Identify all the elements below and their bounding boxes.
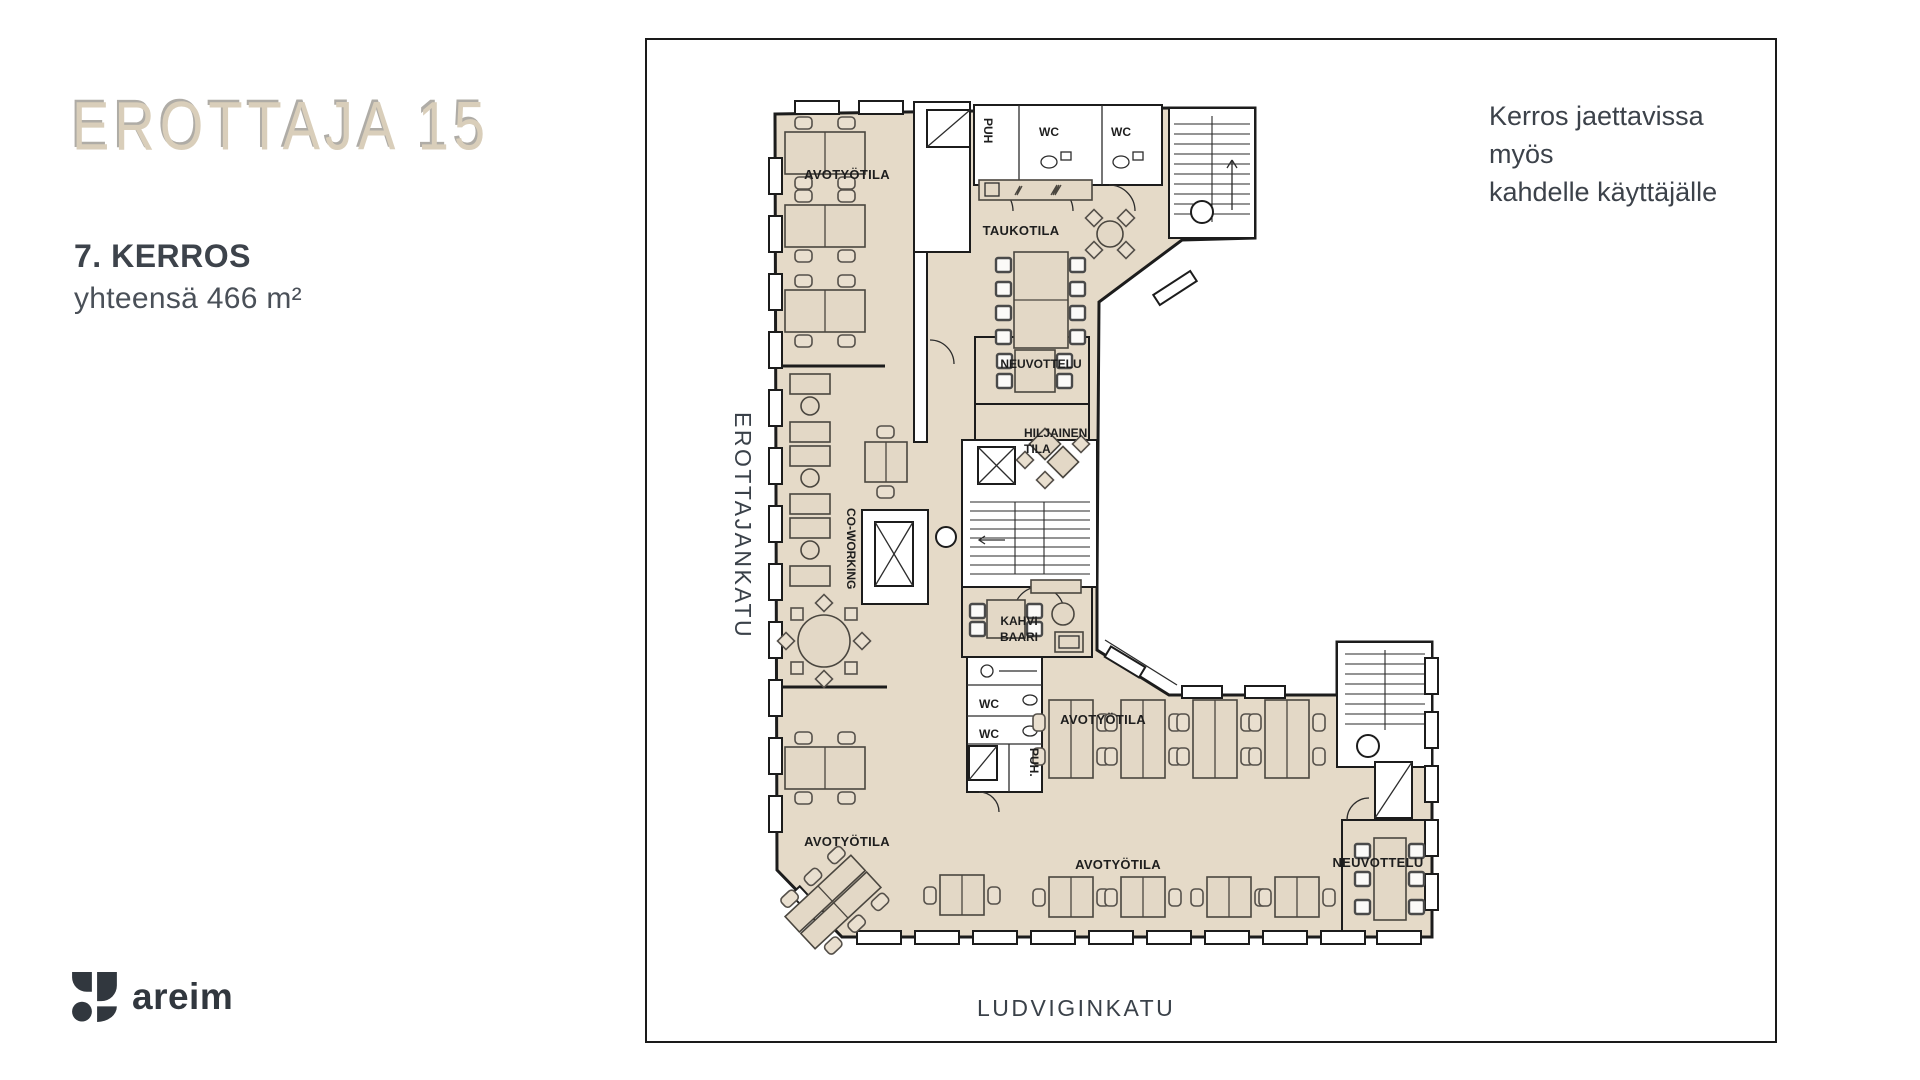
room-label-wc-mid-2: WC bbox=[979, 727, 999, 741]
room-label-coworking: CO-WORKING bbox=[844, 508, 858, 589]
room-label-puh-top: PUH bbox=[981, 118, 995, 143]
stairwell-top-right bbox=[1169, 108, 1255, 238]
room-label-hiljainen-1: HILJAINEN bbox=[1024, 426, 1087, 440]
areim-logo-icon bbox=[72, 972, 118, 1022]
plan-frame: Kerros jaettavissa myös kahdelle käyttäj… bbox=[645, 38, 1777, 1043]
street-label-erottajankatu: EROTTAJANKATU bbox=[730, 412, 756, 639]
areim-logo-text: areim bbox=[132, 976, 233, 1018]
brand-title: EROTTAJA 15 bbox=[72, 86, 490, 165]
street-label-ludviginkatu: LUDVIGINKATU bbox=[977, 995, 1175, 1021]
floor-title: 7. KERROS bbox=[74, 238, 251, 275]
room-label-neuvottelu-mid: NEUVOTTELU bbox=[1000, 357, 1081, 371]
room-label-avotyotila-mid: AVOTYÖTILA bbox=[1060, 712, 1146, 727]
room-label-avotyotila-top: AVOTYÖTILA bbox=[804, 167, 890, 182]
floor-area: yhteensä 466 m² bbox=[74, 282, 302, 316]
top-wc-block bbox=[974, 105, 1162, 185]
room-label-kahvi-2: BAARI bbox=[1000, 630, 1038, 644]
room-label-neuvottelu-bottom: NEUVOTTELU bbox=[1332, 855, 1423, 870]
room-label-wc-top-2: WC bbox=[1111, 125, 1131, 139]
room-label-wc-top-1: WC bbox=[1039, 125, 1059, 139]
floor-plan-svg: AVOTYÖTILA TAUKOTILA NEUVOTTELU HILJAINE… bbox=[647, 40, 1775, 1041]
room-label-taukotila: TAUKOTILA bbox=[983, 223, 1060, 238]
areim-logo: areim bbox=[72, 972, 233, 1022]
room-label-hiljainen-2: TILA bbox=[1024, 442, 1051, 456]
wall-strip bbox=[914, 252, 927, 442]
room-label-kahvi-1: KAHVI bbox=[1000, 614, 1037, 628]
page: { "brand": { "title": "EROTTAJA 15" }, "… bbox=[0, 0, 1920, 1080]
neuvottelu-bottom-furniture bbox=[1355, 838, 1424, 920]
room-label-avotyotila-bottom-left: AVOTYÖTILA bbox=[804, 834, 890, 849]
room-label-puh-mid: PUH. bbox=[1027, 748, 1041, 777]
room-label-wc-mid-1: WC bbox=[979, 697, 999, 711]
room-label-avotyotila-bottom-center: AVOTYÖTILA bbox=[1075, 857, 1161, 872]
service-lift-left bbox=[862, 510, 928, 604]
